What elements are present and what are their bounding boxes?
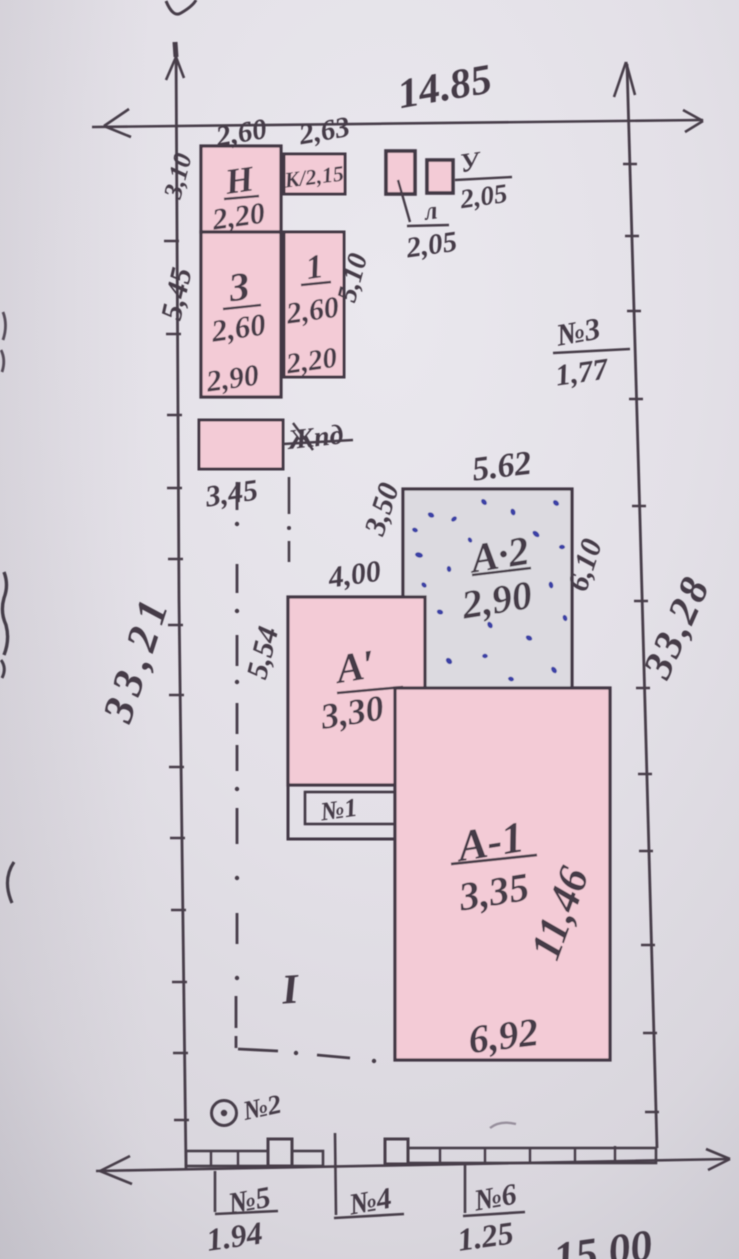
svg-text:№1: №1 — [318, 793, 359, 827]
svg-text:6,92: 6,92 — [466, 1009, 541, 1062]
svg-text:5.62: 5.62 — [470, 445, 534, 489]
